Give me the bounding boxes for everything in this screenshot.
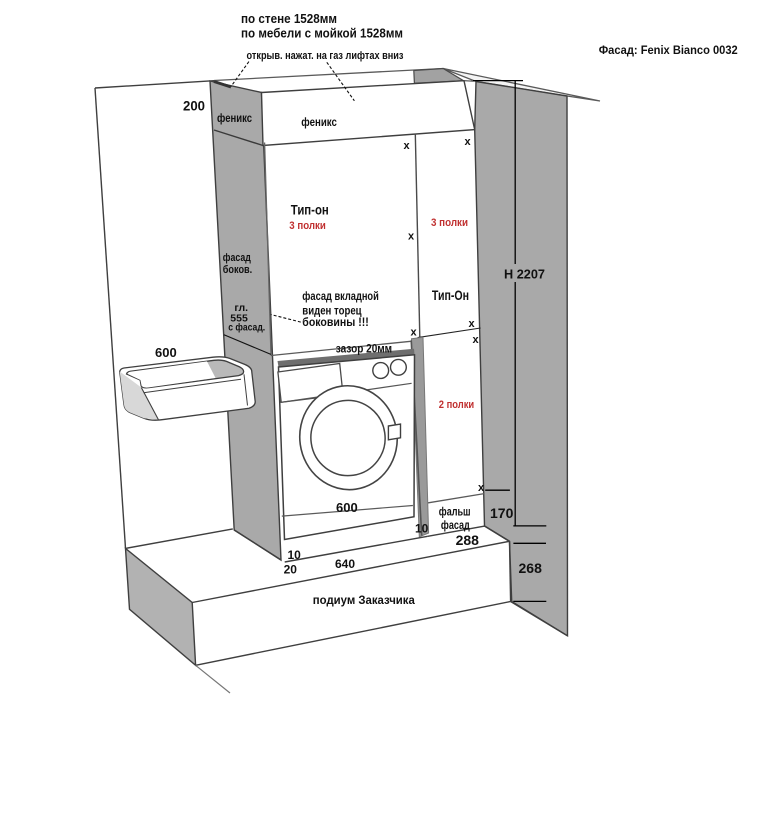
svg-text:200: 200 [183,98,205,114]
svg-text:виден торец: виден торец [302,305,361,317]
svg-text:фасад вкладной: фасад вкладной [302,291,379,303]
svg-text:x: x [478,482,485,494]
svg-text:по стене 1528мм: по стене 1528мм [241,11,337,26]
svg-text:x: x [473,334,480,346]
svg-text:x: x [469,318,476,330]
svg-text:подиум Заказчика: подиум Заказчика [313,593,415,607]
svg-text:268: 268 [519,560,543,576]
svg-text:640: 640 [335,557,355,571]
svg-text:с фасад.: с фасад. [228,322,265,334]
svg-text:10: 10 [288,548,302,562]
svg-text:x: x [404,140,411,152]
svg-text:боков.: боков. [223,264,252,276]
svg-text:Тип-он: Тип-он [291,203,329,218]
svg-text:2 полки: 2 полки [439,399,474,411]
svg-text:феникс: феникс [301,117,337,129]
svg-text:x: x [408,231,415,243]
svg-text:3 полки: 3 полки [289,220,326,232]
svg-text:170: 170 [490,505,514,521]
svg-text:боковины !!!: боковины !!! [302,317,369,329]
svg-text:600: 600 [155,345,177,360]
svg-text:Фасад: Fenix Bianco 0032: Фасад: Fenix Bianco 0032 [599,43,738,57]
svg-text:по мебели с мойкой 1528мм: по мебели с мойкой 1528мм [241,26,403,41]
svg-text:фальш: фальш [439,507,471,519]
svg-text:H 2207: H 2207 [504,267,545,282]
svg-text:зазор 20мм: зазор 20мм [336,342,392,356]
svg-text:20: 20 [284,563,298,577]
svg-text:феникс: феникс [217,113,252,125]
svg-text:x: x [465,136,472,148]
svg-text:600: 600 [336,500,358,515]
svg-text:10: 10 [415,522,429,536]
svg-text:фасад: фасад [223,252,251,264]
svg-text:Тип-Он: Тип-Он [432,288,469,303]
svg-text:открыв. нажат. на газ лифтах в: открыв. нажат. на газ лифтах вниз [247,50,404,62]
svg-text:288: 288 [456,532,480,548]
svg-text:x: x [411,327,418,339]
svg-text:3 полки: 3 полки [431,217,468,229]
svg-text:фасад: фасад [441,520,470,532]
